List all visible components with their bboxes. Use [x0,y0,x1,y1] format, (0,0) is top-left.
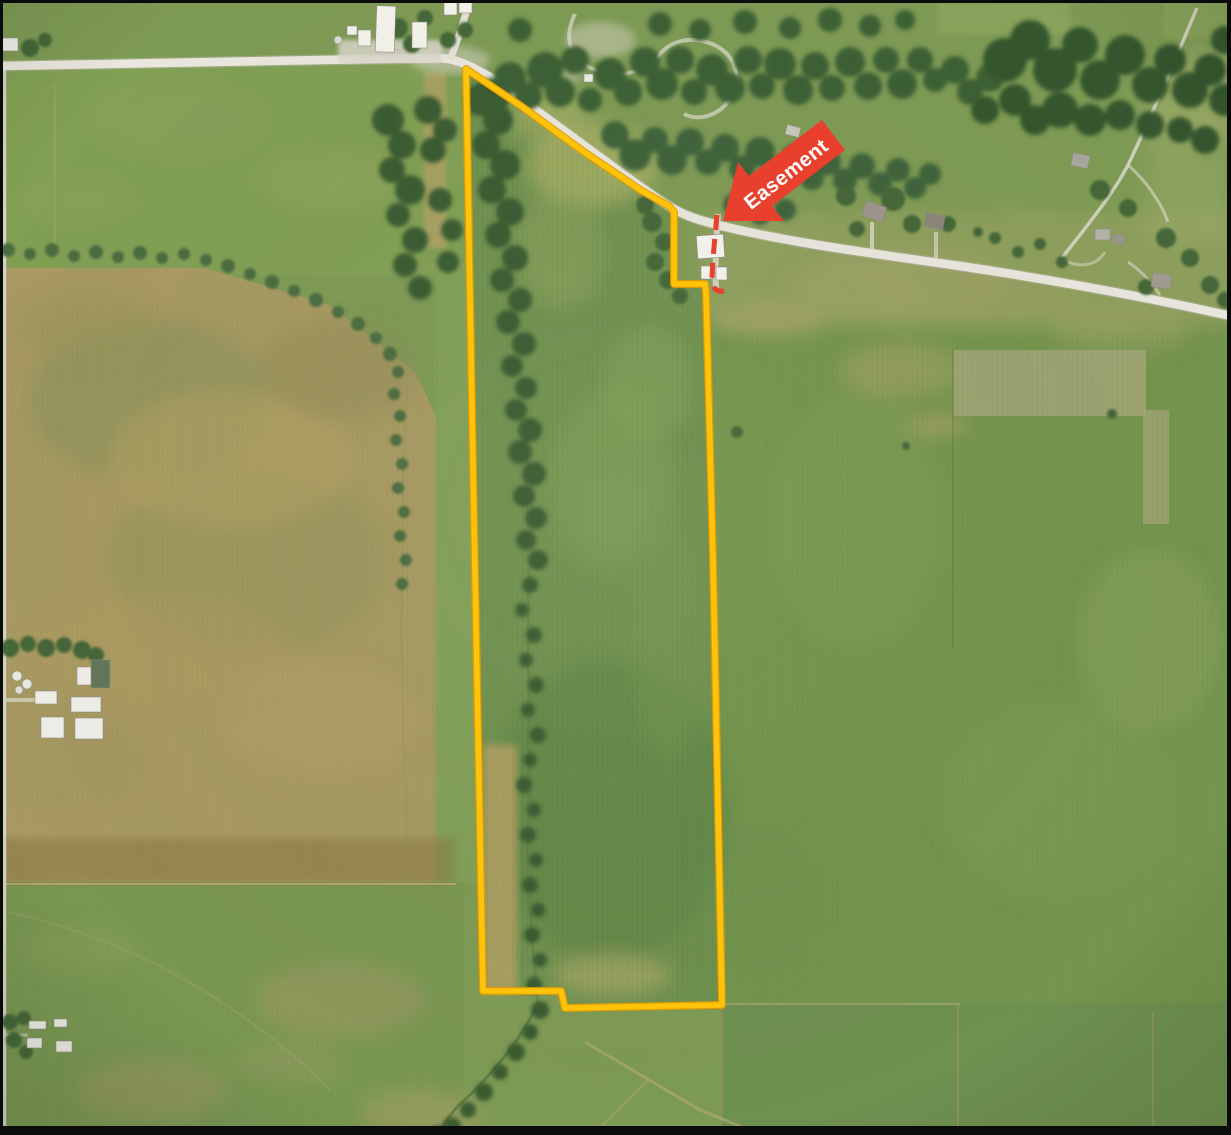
aerial-map: Easement [0,0,1231,1135]
aerial-map-stage: Easement [0,0,1231,1135]
